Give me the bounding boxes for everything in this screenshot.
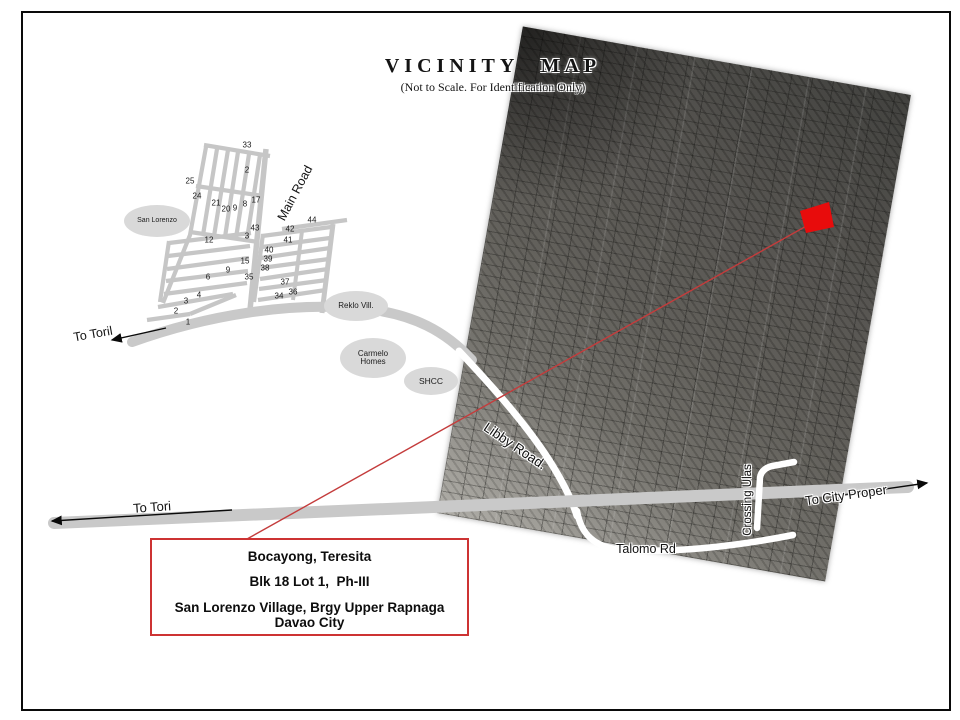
- property-info-box: Bocayong, Teresita Blk 18 Lot 1, Ph-III …: [150, 538, 469, 636]
- lot-number: 42: [286, 225, 295, 234]
- lot-number: 40: [265, 246, 274, 255]
- lot-number: 21: [212, 199, 221, 208]
- place-ellipse-san-lorenzo: San Lorenzo: [124, 205, 190, 237]
- highway-road: [54, 487, 908, 523]
- shcc-label: SHCC: [419, 377, 443, 386]
- lot-number: 15: [241, 257, 250, 266]
- place-ellipse-shcc: SHCC: [404, 367, 458, 395]
- place-ellipse-reklo-vill: Reklo Vill.: [324, 291, 388, 321]
- lot-number: 6: [206, 273, 210, 282]
- title-block: VICINITY MAP (Not to Scale. For Identifi…: [385, 55, 601, 95]
- location-flag: [800, 202, 834, 233]
- lot-number: 12: [205, 236, 214, 245]
- lot-number: 20: [222, 205, 231, 214]
- reklo-vill-label: Reklo Vill.: [338, 302, 373, 310]
- page-subtitle: (Not to Scale. For Identification Only): [385, 80, 601, 95]
- lot-number: 2: [245, 166, 249, 175]
- street-grid-lower-left-block: [147, 233, 251, 320]
- lot-number: 43: [251, 224, 260, 233]
- lot-number: 3: [184, 297, 188, 306]
- lot-number: 41: [284, 236, 293, 245]
- to-tori-label: To Tori: [132, 498, 171, 516]
- roads-overlay: [0, 0, 960, 720]
- owner-name: Bocayong, Teresita: [152, 549, 467, 564]
- lot-number: 25: [186, 177, 195, 186]
- talomo-rd-label: Talomo Rd: [616, 542, 676, 556]
- san-lorenzo-label: San Lorenzo: [137, 217, 177, 224]
- crossing-ulas-label: Crossing Ulas: [742, 464, 754, 536]
- lot-number: 37: [281, 278, 290, 287]
- city: Davao City: [152, 615, 467, 630]
- lot-number: 17: [252, 196, 261, 205]
- lot-number: 1: [186, 318, 190, 327]
- block-lot-phase: Blk 18 Lot 1, Ph-III: [152, 574, 467, 589]
- lot-number: 36: [289, 288, 298, 297]
- lot-number: 35: [245, 273, 254, 282]
- lot-number: 8: [243, 200, 247, 209]
- lot-number: 39: [264, 255, 273, 264]
- page-title: VICINITY MAP: [385, 55, 601, 78]
- libby-road: [459, 351, 577, 516]
- lot-number: 24: [193, 192, 202, 201]
- lot-number: 38: [261, 264, 270, 273]
- lot-number: 2: [174, 307, 178, 316]
- lot-number: 9: [233, 204, 237, 213]
- lot-number: 33: [243, 141, 252, 150]
- lot-number: 44: [308, 216, 317, 225]
- lot-number: 3: [245, 232, 249, 241]
- place-ellipse-carmelo-homes: Carmelo Homes: [340, 338, 406, 378]
- lot-number: 34: [275, 292, 284, 301]
- village-barangay: San Lorenzo Village, Brgy Upper Rapnaga: [152, 600, 467, 615]
- lot-number: 9: [226, 266, 230, 275]
- lot-number: 4: [197, 291, 201, 300]
- carmelo-label-line2: Homes: [360, 358, 385, 366]
- vicinity-map-page: San Lorenzo Reklo Vill. Carmelo Homes SH…: [0, 0, 960, 720]
